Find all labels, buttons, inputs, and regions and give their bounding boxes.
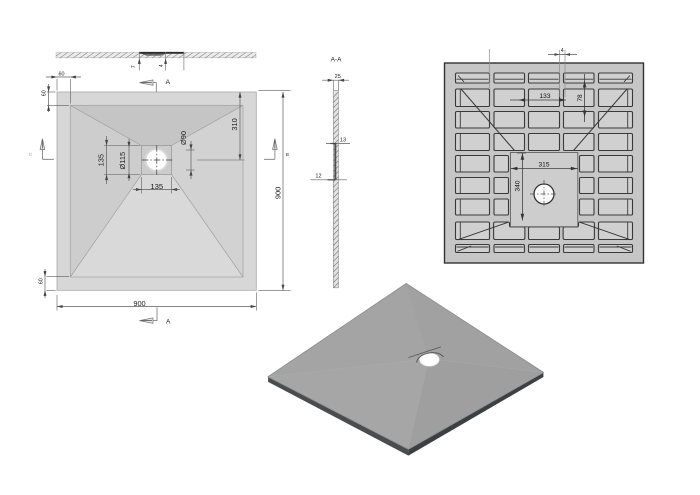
svg-text:A: A [166, 79, 171, 86]
svg-text:12: 12 [315, 174, 321, 180]
svg-text:133: 133 [539, 93, 550, 100]
svg-text:13: 13 [340, 138, 346, 144]
svg-text:900: 900 [133, 299, 145, 308]
svg-text:315: 315 [538, 162, 549, 169]
svg-text:7: 7 [131, 65, 137, 68]
svg-text:60: 60 [41, 90, 47, 96]
svg-text:78: 78 [577, 94, 584, 102]
svg-text:4: 4 [159, 64, 165, 67]
svg-text:A: A [166, 319, 171, 326]
svg-text:Ø90: Ø90 [179, 131, 188, 145]
svg-text:B: B [29, 152, 32, 158]
svg-text:Ø115: Ø115 [118, 152, 127, 170]
svg-text:60: 60 [59, 71, 65, 77]
svg-text:4: 4 [561, 48, 564, 54]
svg-text:135: 135 [96, 154, 105, 166]
svg-text:B: B [286, 152, 289, 158]
svg-text:135: 135 [150, 182, 163, 191]
svg-text:A-A: A-A [331, 56, 343, 63]
svg-text:340: 340 [514, 180, 521, 191]
svg-text:310: 310 [230, 118, 239, 130]
svg-text:25: 25 [335, 74, 341, 80]
svg-text:60: 60 [39, 278, 45, 284]
svg-text:900: 900 [273, 187, 282, 199]
